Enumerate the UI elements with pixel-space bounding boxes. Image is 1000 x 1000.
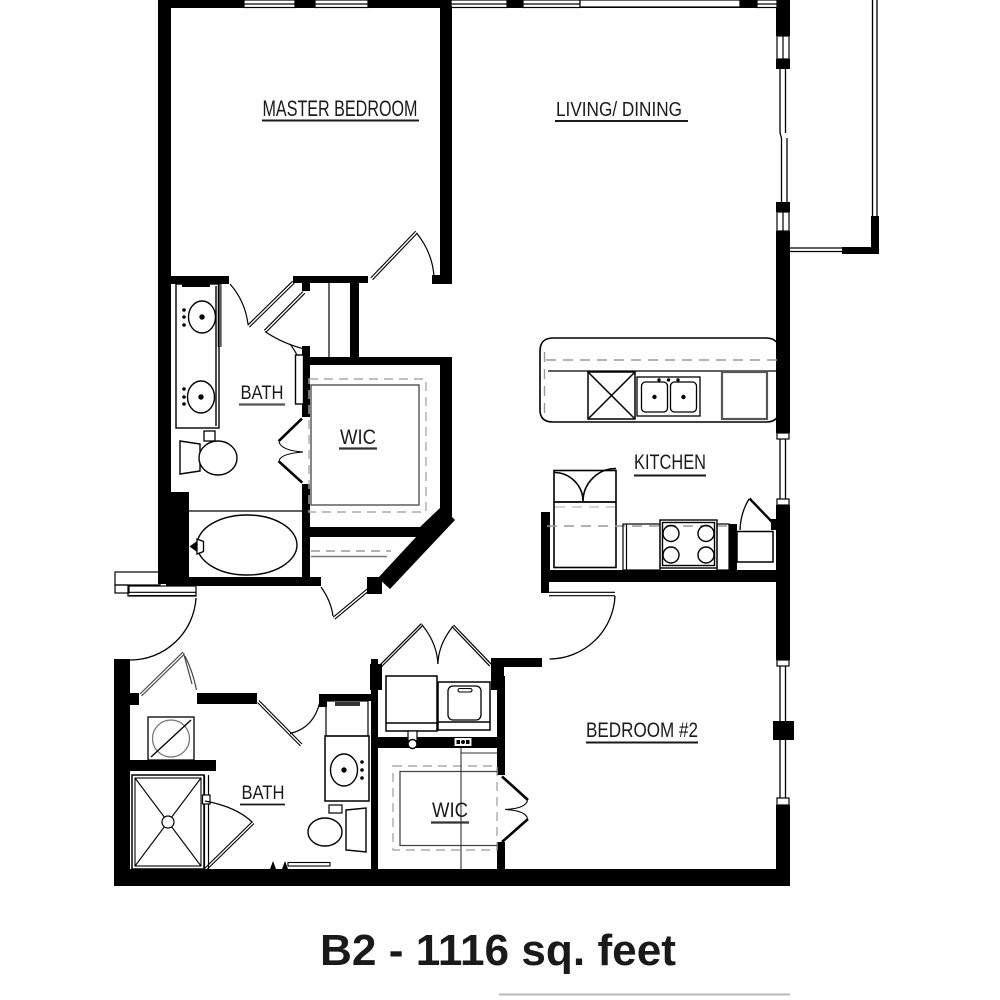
svg-text:B2 - 1116 sq. feet: B2 - 1116 sq. feet: [320, 927, 676, 975]
svg-text:WIC: WIC: [432, 799, 468, 822]
svg-text:KITCHEN: KITCHEN: [634, 451, 706, 474]
svg-text:BEDROOM #2: BEDROOM #2: [586, 719, 698, 742]
svg-text:MASTER BEDROOM: MASTER BEDROOM: [263, 96, 418, 121]
svg-text:BATH: BATH: [242, 783, 285, 804]
svg-text:BATH: BATH: [241, 383, 284, 404]
svg-text:LIVING/ DINING: LIVING/ DINING: [556, 99, 682, 121]
svg-text:WIC: WIC: [340, 426, 376, 449]
